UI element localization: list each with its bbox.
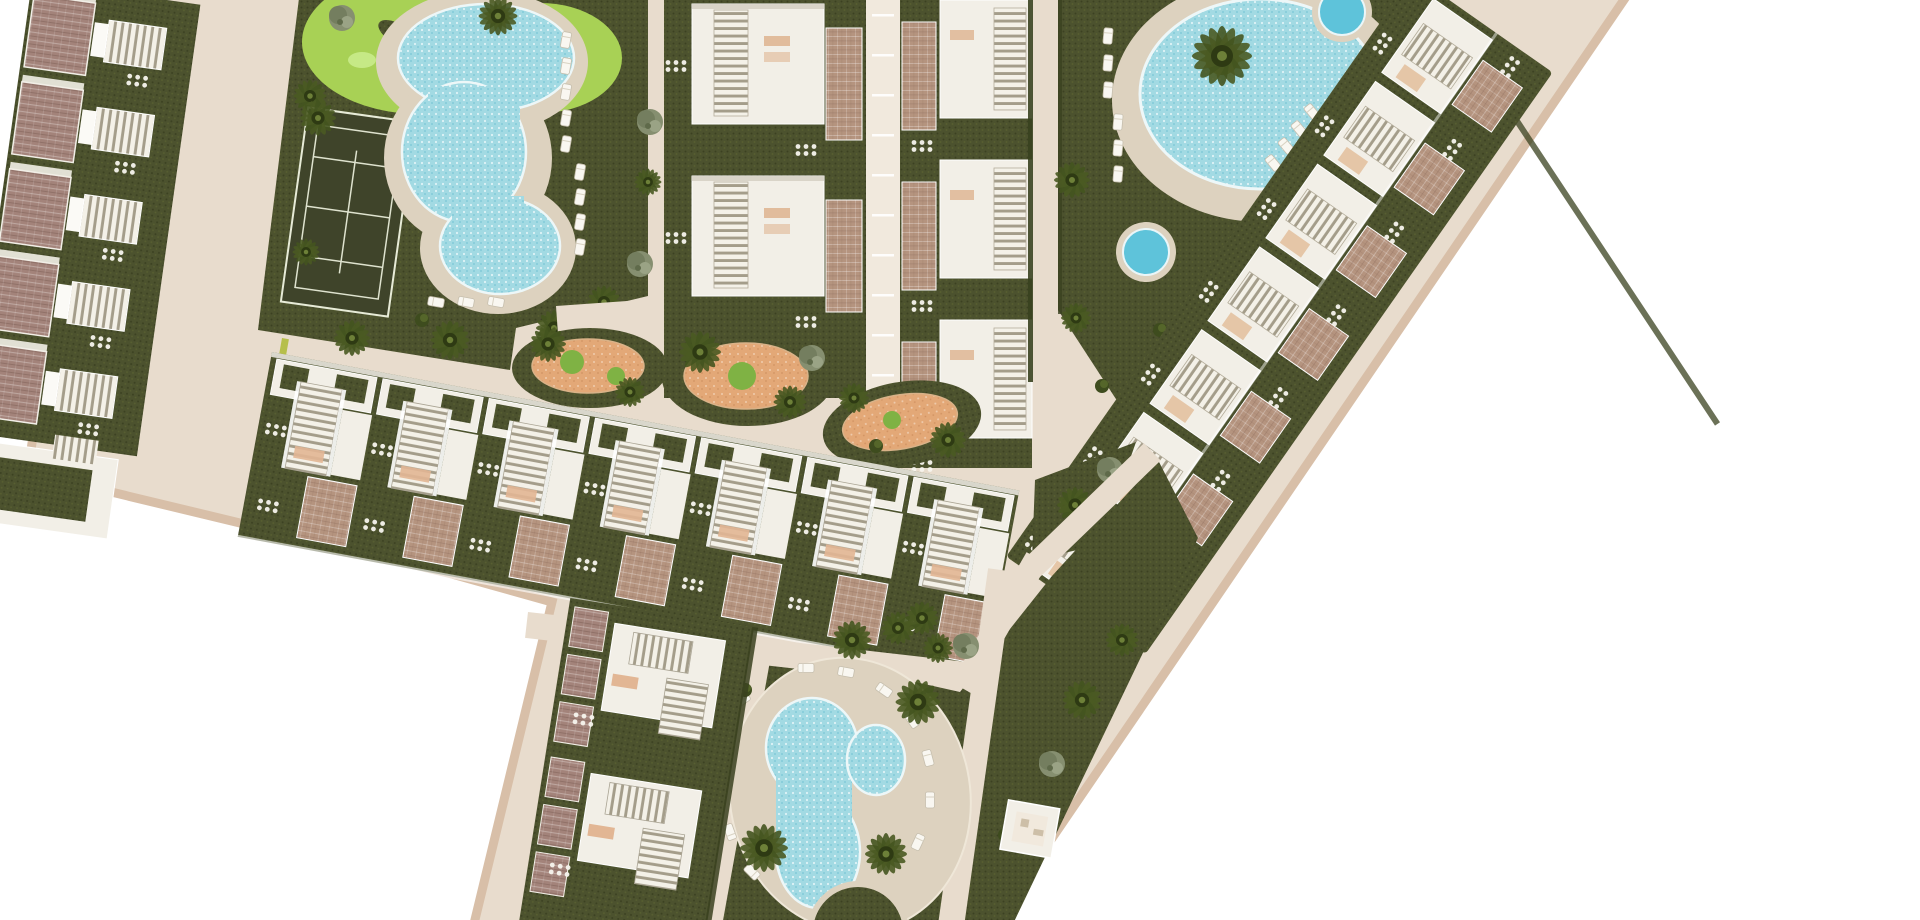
tree-icon xyxy=(953,633,979,659)
unit-patio xyxy=(403,496,463,566)
house-roof xyxy=(561,654,601,699)
walk-tick xyxy=(872,54,894,57)
walk-tick xyxy=(872,374,894,377)
walk-tick xyxy=(872,134,894,137)
house-stairs xyxy=(54,369,117,419)
house-roof xyxy=(0,169,71,250)
pavilion-floor xyxy=(1011,811,1048,846)
lounger-row xyxy=(1113,140,1123,157)
bush-icon xyxy=(1095,379,1109,393)
unit-stairs xyxy=(634,828,684,890)
lounger-row xyxy=(1103,28,1113,45)
unit-patio xyxy=(721,555,781,625)
unit-ridge xyxy=(692,4,824,9)
tree-icon xyxy=(799,345,825,371)
unit-patio xyxy=(826,28,862,140)
south-pool-join xyxy=(776,752,852,848)
bush-icon xyxy=(869,439,883,453)
unit-stairs xyxy=(994,8,1026,110)
site-plan xyxy=(0,0,1920,920)
pavilion-detail xyxy=(1020,818,1029,827)
lounger-icon xyxy=(798,664,814,673)
unit-roof xyxy=(692,176,824,296)
lounger-row xyxy=(1103,28,1113,99)
lounger-row xyxy=(427,296,504,308)
sun-lounger-accent xyxy=(764,208,790,218)
central-walkway xyxy=(866,0,900,410)
house-roof xyxy=(12,82,84,163)
play-green xyxy=(560,350,584,374)
unit-patio xyxy=(902,182,936,290)
walkway-ticks xyxy=(872,294,894,297)
walkway-ticks xyxy=(872,214,894,217)
main-pool-join xyxy=(428,86,520,170)
lounger-icon xyxy=(1113,140,1123,157)
unit-stairs xyxy=(714,182,748,288)
house-roof xyxy=(554,702,594,747)
lounger-icon xyxy=(926,792,935,808)
lounger-row xyxy=(1113,114,1123,183)
walkway-ticks xyxy=(872,174,894,177)
unit-roof xyxy=(692,4,824,124)
walk-tick xyxy=(872,14,894,17)
house-roof xyxy=(569,607,609,652)
tree-icon xyxy=(637,109,663,135)
house-roof xyxy=(545,757,585,802)
walk-tick xyxy=(872,174,894,177)
lounger-row xyxy=(1113,166,1123,183)
main-pool-join xyxy=(452,196,524,260)
lounger-row xyxy=(1103,82,1113,99)
sun-lounger-accent xyxy=(950,30,974,40)
unit-ridge xyxy=(692,176,824,181)
house-stairs xyxy=(79,194,142,244)
sun-lounger-accent xyxy=(950,190,974,200)
sun-lounger-accent xyxy=(764,52,790,62)
site-plan-svg xyxy=(0,0,1920,920)
lawn-highlight xyxy=(348,52,376,68)
hedge-line xyxy=(1028,0,1033,382)
walk-tick xyxy=(872,294,894,297)
unit-patio xyxy=(826,200,862,312)
lounger-icon xyxy=(1113,166,1123,183)
walkway-ticks xyxy=(872,374,894,377)
play-green xyxy=(728,362,756,390)
unit-patio xyxy=(509,516,569,586)
unit-patio xyxy=(297,477,357,547)
hedge-line xyxy=(1058,0,1062,314)
unit-stairs xyxy=(994,328,1026,430)
bush-icon xyxy=(415,313,429,327)
sun-lounger-accent xyxy=(950,350,974,360)
lounger-icon xyxy=(1103,82,1113,99)
house-roof xyxy=(0,256,59,337)
sun-lounger-accent xyxy=(764,36,790,46)
tree-icon xyxy=(1039,751,1065,777)
lounger-row xyxy=(1113,114,1123,131)
lounger-icon xyxy=(1103,28,1113,45)
plunge-pool xyxy=(1123,229,1169,275)
pool-pavilion xyxy=(1000,800,1060,858)
walk-tick xyxy=(872,334,894,337)
house-stairs xyxy=(91,107,154,157)
plunge-pool xyxy=(1319,0,1365,35)
lounger-icon xyxy=(1113,114,1123,131)
walkway-ticks xyxy=(872,334,894,337)
tree-icon xyxy=(329,5,355,31)
walk-tick xyxy=(872,94,894,97)
house-roof xyxy=(537,804,577,849)
play-green xyxy=(883,411,901,429)
sun-lounger-accent xyxy=(764,224,790,234)
walkway-ticks xyxy=(872,254,894,257)
walkway-ticks xyxy=(872,134,894,137)
amenity-park xyxy=(258,0,670,370)
lounger-icon xyxy=(1103,55,1113,72)
walkway-ticks xyxy=(872,94,894,97)
lounger-row xyxy=(1103,55,1113,72)
walkway-ticks xyxy=(872,14,894,17)
south-pool-small xyxy=(847,725,905,795)
house-roof xyxy=(530,852,570,897)
tree-icon xyxy=(627,251,653,277)
unit-stairs xyxy=(994,168,1026,270)
unit-stairs xyxy=(658,678,708,740)
unit-patio xyxy=(902,22,936,130)
unit-stairs xyxy=(714,10,748,116)
house-stairs xyxy=(103,20,166,70)
walk-tick xyxy=(872,254,894,257)
walk-tick xyxy=(872,214,894,217)
unit-patio xyxy=(615,536,675,606)
house-roof xyxy=(24,0,96,75)
walkway-ticks xyxy=(872,54,894,57)
house-stairs xyxy=(67,282,130,332)
